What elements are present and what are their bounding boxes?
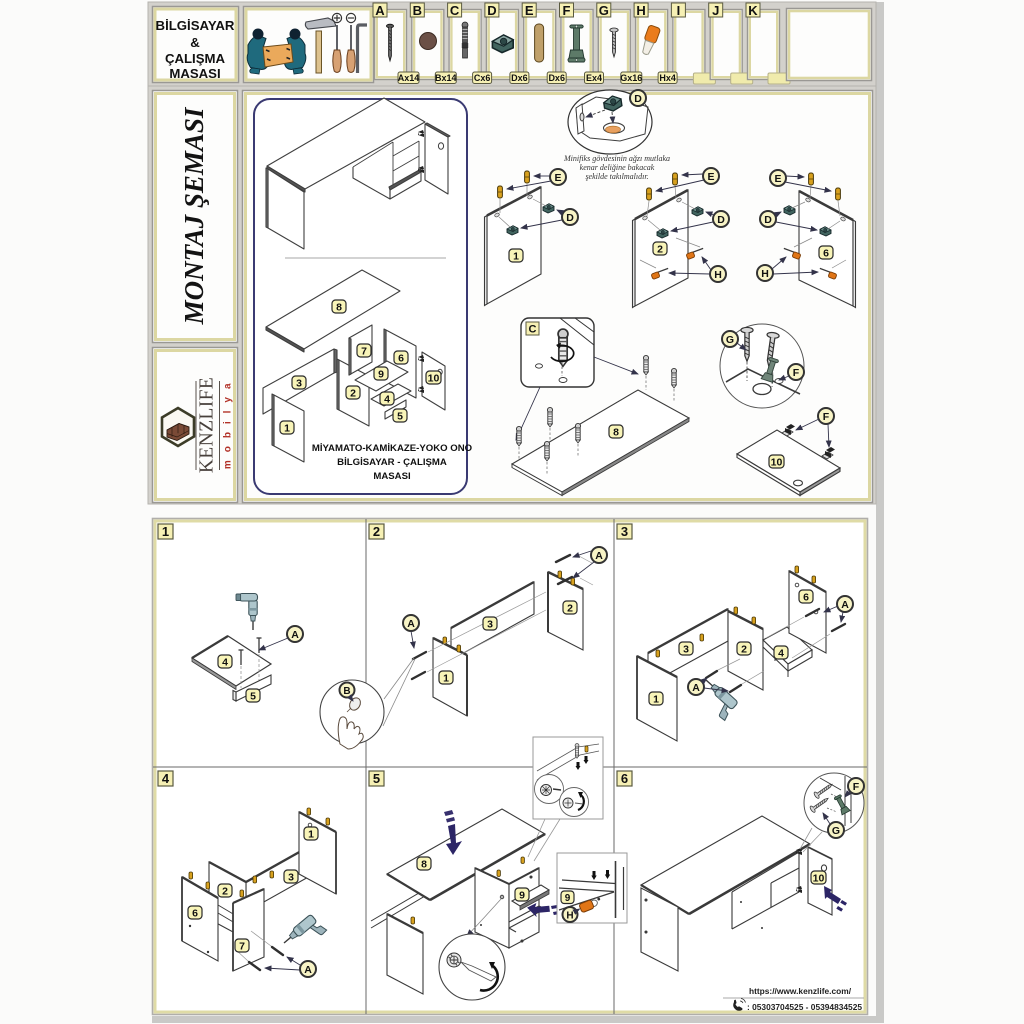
svg-text:A: A [291, 629, 299, 641]
svg-text:E: E [707, 171, 714, 183]
svg-text:6: 6 [192, 908, 198, 920]
svg-text:6: 6 [621, 771, 628, 786]
svg-text:K: K [748, 3, 758, 18]
svg-text:C: C [529, 324, 537, 336]
svg-text:9: 9 [519, 890, 525, 902]
svg-text:E: E [525, 3, 534, 18]
svg-text:Dx6: Dx6 [548, 73, 565, 83]
svg-text:A: A [375, 3, 385, 18]
svg-text:9: 9 [565, 893, 571, 904]
svg-text:A: A [841, 599, 849, 611]
svg-text:F: F [823, 411, 830, 423]
svg-text:3: 3 [683, 644, 689, 656]
svg-text:&: & [190, 35, 200, 50]
svg-text:H: H [566, 911, 573, 922]
svg-text:1: 1 [443, 673, 449, 685]
svg-text:Cx6: Cx6 [474, 73, 491, 83]
svg-text:5: 5 [397, 411, 403, 423]
svg-text:1: 1 [653, 694, 659, 706]
svg-text:5: 5 [373, 771, 380, 786]
svg-text:2: 2 [657, 244, 663, 256]
svg-text:MASASI: MASASI [169, 66, 220, 81]
svg-text:A: A [407, 618, 415, 630]
svg-text:Gx16: Gx16 [620, 73, 642, 83]
svg-text:D: D [634, 93, 642, 105]
svg-text:3: 3 [621, 524, 628, 539]
svg-text:8: 8 [336, 302, 342, 314]
svg-text:D: D [717, 214, 725, 226]
svg-text:https://www.kenzlife.com/: https://www.kenzlife.com/ [749, 986, 852, 996]
svg-text:1: 1 [284, 423, 290, 435]
svg-text:10: 10 [428, 373, 440, 385]
svg-text:10: 10 [771, 457, 783, 469]
svg-text:5: 5 [250, 691, 256, 703]
svg-text:A: A [692, 682, 700, 694]
svg-text:6: 6 [823, 248, 829, 260]
svg-text:BİLGİSAYAR - ÇALIŞMA: BİLGİSAYAR - ÇALIŞMA [337, 457, 447, 468]
svg-text:1: 1 [162, 524, 169, 539]
svg-text:I: I [677, 3, 681, 18]
svg-text:MİYAMATO-KAMİKAZE-YOKO ONO: MİYAMATO-KAMİKAZE-YOKO ONO [312, 443, 473, 454]
svg-text:MASASI: MASASI [373, 471, 411, 482]
svg-text:kenar deliğine bakacak: kenar deliğine bakacak [580, 163, 655, 172]
svg-text:6: 6 [803, 592, 809, 604]
svg-text:F: F [793, 367, 800, 379]
svg-text:A: A [595, 550, 603, 562]
svg-text:ÇALIŞMA: ÇALIŞMA [165, 51, 226, 66]
svg-text:E: E [554, 172, 561, 184]
svg-text:10: 10 [813, 873, 825, 885]
svg-text:KENZLIFE: KENZLIFE [197, 377, 218, 473]
svg-text:2: 2 [567, 603, 573, 615]
svg-text:B: B [413, 3, 422, 18]
svg-text:4: 4 [384, 394, 390, 406]
svg-text:H: H [761, 268, 769, 280]
svg-text:2: 2 [373, 524, 380, 539]
svg-text:B: B [343, 686, 350, 697]
svg-text:Ax14: Ax14 [398, 73, 420, 83]
svg-text:: 05303704525 - 05394834525: : 05303704525 - 05394834525 [747, 1002, 862, 1012]
svg-text:MONTAJ ŞEMASI: MONTAJ ŞEMASI [179, 106, 209, 325]
svg-text:Dx6: Dx6 [511, 73, 528, 83]
svg-text:2: 2 [222, 886, 228, 898]
svg-text:BİLGİSAYAR: BİLGİSAYAR [156, 18, 235, 33]
svg-text:G: G [832, 825, 840, 837]
svg-text:3: 3 [288, 872, 294, 884]
svg-text:7: 7 [361, 346, 367, 358]
svg-text:3: 3 [487, 619, 493, 631]
svg-text:2: 2 [741, 644, 747, 656]
svg-text:H: H [636, 3, 645, 18]
svg-text:D: D [487, 3, 496, 18]
svg-text:m o b i l y a: m o b i l y a [223, 381, 234, 469]
svg-text:4: 4 [778, 648, 784, 660]
svg-text:6: 6 [398, 353, 404, 365]
svg-text:4: 4 [222, 657, 228, 669]
svg-text:G: G [599, 3, 609, 18]
svg-text:J: J [712, 3, 719, 18]
svg-text:2: 2 [350, 388, 356, 400]
svg-text:Minifiks gövdesinin ağzı mutla: Minifiks gövdesinin ağzı mutlaka [563, 154, 670, 163]
svg-text:Ex4: Ex4 [586, 73, 602, 83]
svg-text:H: H [714, 269, 722, 281]
svg-text:D: D [764, 214, 772, 226]
svg-text:G: G [726, 334, 734, 346]
svg-text:C: C [450, 3, 460, 18]
svg-text:F: F [563, 3, 571, 18]
svg-text:D: D [566, 212, 574, 224]
svg-text:F: F [853, 781, 860, 793]
svg-text:A: A [304, 964, 312, 976]
svg-text:Hx4: Hx4 [659, 73, 676, 83]
svg-text:8: 8 [421, 859, 427, 871]
svg-text:8: 8 [613, 427, 619, 439]
svg-text:1: 1 [513, 251, 519, 263]
svg-text:şekilde takılmalıdır.: şekilde takılmalıdır. [585, 172, 648, 181]
svg-text:9: 9 [378, 369, 384, 381]
svg-text:E: E [774, 173, 781, 185]
svg-text:3: 3 [296, 378, 302, 390]
svg-text:7: 7 [239, 941, 245, 953]
svg-text:Bx14: Bx14 [435, 73, 457, 83]
svg-text:4: 4 [162, 771, 170, 786]
svg-text:1: 1 [308, 829, 314, 841]
